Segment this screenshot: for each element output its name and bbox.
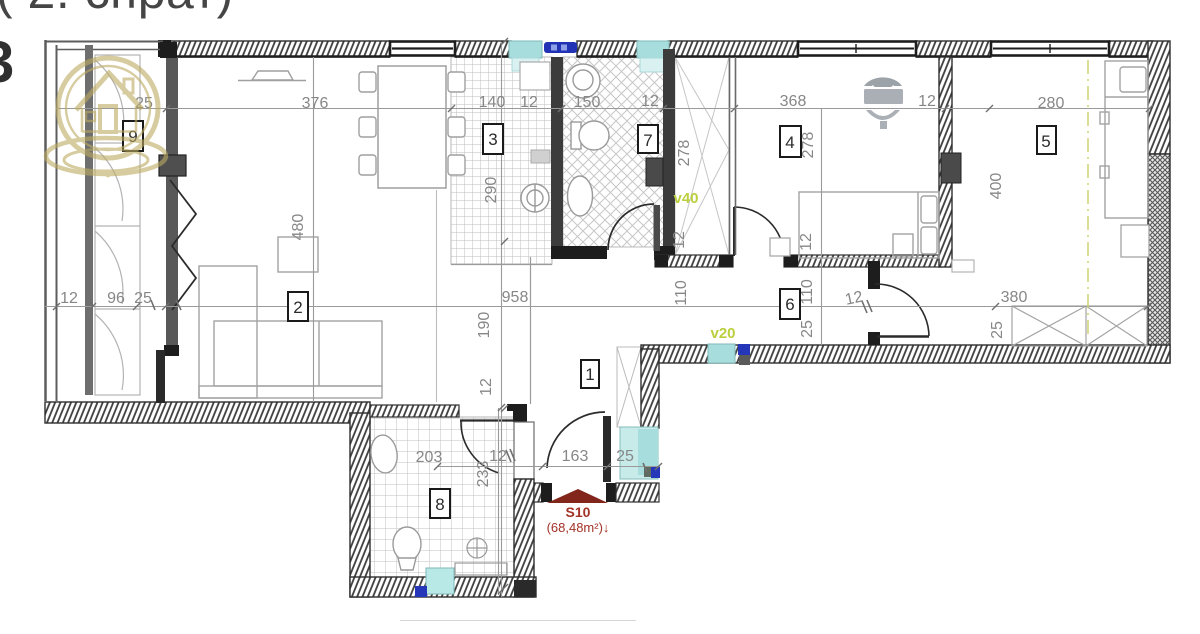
svg-text:25: 25 <box>989 321 1006 339</box>
svg-text:S10: S10 <box>566 504 591 520</box>
svg-text:400: 400 <box>988 173 1005 200</box>
svg-text:12: 12 <box>798 233 815 251</box>
svg-text:278: 278 <box>800 132 817 159</box>
svg-text:163: 163 <box>562 448 589 465</box>
svg-text:480: 480 <box>290 214 307 241</box>
svg-text:12: 12 <box>641 93 659 110</box>
svg-text:96: 96 <box>107 290 125 307</box>
svg-text:150: 150 <box>574 94 601 111</box>
svg-text:2: 2 <box>293 298 302 317</box>
svg-text:278: 278 <box>676 140 693 167</box>
svg-text:( 2. спрат): ( 2. спрат) <box>0 0 234 19</box>
svg-text:12: 12 <box>478 378 495 396</box>
svg-text:140: 140 <box>479 94 506 111</box>
svg-text:12: 12 <box>844 288 865 308</box>
svg-text:280: 280 <box>1038 95 1065 112</box>
svg-text:7: 7 <box>643 131 652 150</box>
svg-text:v40: v40 <box>673 190 698 207</box>
svg-text:380: 380 <box>1001 289 1028 306</box>
svg-text:25: 25 <box>616 448 634 465</box>
svg-text:3: 3 <box>488 130 497 149</box>
svg-text:203: 203 <box>416 449 443 466</box>
svg-text:5: 5 <box>1041 132 1050 151</box>
svg-text:25: 25 <box>134 290 152 307</box>
svg-text:110: 110 <box>673 280 690 306</box>
svg-text:12: 12 <box>60 290 78 307</box>
svg-text:12: 12 <box>520 94 538 111</box>
svg-text:3: 3 <box>0 30 14 95</box>
svg-text:368: 368 <box>780 93 807 110</box>
svg-text:110: 110 <box>799 279 816 305</box>
svg-text:12: 12 <box>918 93 936 110</box>
svg-text:233: 233 <box>475 461 492 488</box>
svg-text:4: 4 <box>785 133 794 152</box>
svg-text:25: 25 <box>799 320 816 338</box>
svg-text:290: 290 <box>483 177 500 204</box>
svg-text:958: 958 <box>502 289 529 306</box>
svg-text:376: 376 <box>302 95 329 112</box>
svg-text:190: 190 <box>476 312 493 339</box>
svg-text:6: 6 <box>785 295 794 314</box>
svg-text:8: 8 <box>435 495 444 514</box>
svg-text:12: 12 <box>671 231 688 249</box>
svg-text:1: 1 <box>585 365 594 384</box>
svg-text:(68,48m²)↓: (68,48m²)↓ <box>547 520 610 535</box>
svg-text:v20: v20 <box>710 325 735 342</box>
